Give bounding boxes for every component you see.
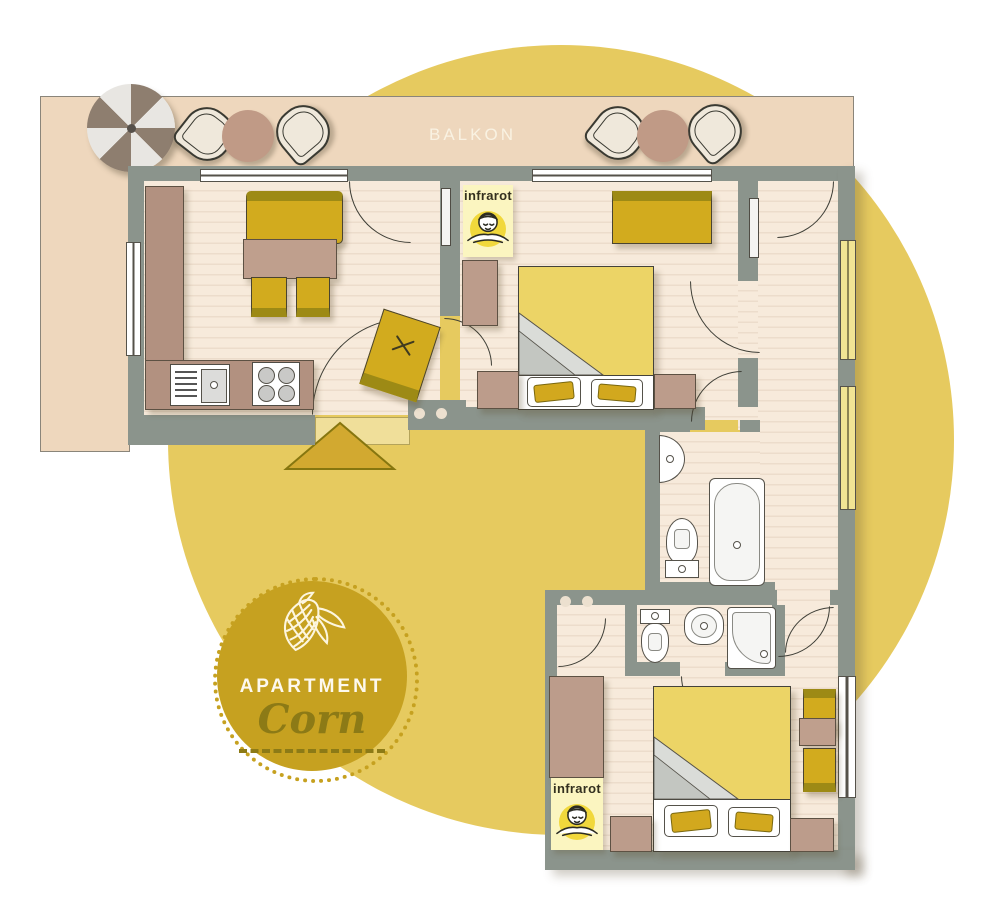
wall-living-bottom — [128, 415, 315, 445]
dining-table — [243, 239, 337, 279]
radiator — [749, 198, 759, 258]
nightstand — [477, 371, 519, 409]
infrared-label: infrarot — [463, 188, 513, 203]
infrared-label: infrarot — [551, 781, 603, 796]
pillow — [728, 807, 780, 837]
window-bedroom1 — [532, 169, 712, 182]
window-living — [200, 169, 348, 182]
cushion — [670, 809, 712, 833]
double-bed — [518, 266, 654, 410]
cushion — [533, 381, 575, 403]
coat-hook-dot — [414, 408, 425, 419]
coat-hook-dot — [582, 596, 593, 607]
nightstand — [790, 818, 834, 852]
balcony-table — [637, 110, 689, 162]
badge-name: Corn — [217, 696, 407, 743]
toilet-tank — [640, 609, 670, 624]
wardrobe — [549, 676, 604, 778]
kitchen-sink-unit — [170, 364, 230, 406]
corridor-floor — [758, 181, 838, 605]
window-kitchen — [126, 242, 141, 356]
nightstand — [610, 816, 652, 852]
desk-chair — [803, 748, 836, 792]
kitchen-cabinet-run — [145, 186, 184, 364]
sideboard — [612, 191, 712, 244]
infrared-panel: infrarot — [551, 778, 603, 850]
toilet-tank — [665, 560, 699, 578]
parasol-icon — [87, 84, 175, 172]
sink-drainer — [175, 371, 197, 399]
wardrobe — [462, 260, 498, 326]
wall-hall-top — [545, 590, 777, 605]
wall-bathroom1-top — [645, 420, 690, 432]
sauna-person-icon — [464, 206, 512, 250]
burner — [278, 367, 295, 384]
coat-hook-dot — [560, 596, 571, 607]
infrared-panel: infrarot — [463, 185, 513, 257]
coat-hook-dot — [436, 408, 447, 419]
armchair-stitch — [389, 331, 417, 359]
badge-divider — [239, 749, 385, 753]
corn-icon — [269, 591, 357, 669]
cushion — [597, 383, 636, 402]
wall-hall-top — [830, 590, 838, 605]
dining-chair — [251, 277, 287, 317]
apartment-badge: APARTMENT Corn — [217, 581, 407, 771]
wall-bathroom1-top — [740, 420, 760, 432]
burner — [258, 367, 275, 384]
radiator — [441, 188, 451, 246]
wall-bathroom1-left — [645, 420, 660, 595]
pillow — [591, 379, 643, 407]
nightstand — [654, 374, 696, 409]
window-corridor — [840, 240, 856, 360]
balcony-table — [222, 110, 274, 162]
wall-bottom — [545, 850, 855, 870]
balcony-label: BALKON — [400, 125, 545, 145]
toilet — [666, 518, 698, 564]
bathtub — [709, 478, 765, 586]
wall-bathroom2-bottom — [625, 662, 680, 676]
sauna-person-icon — [553, 799, 601, 843]
window-bedroom2 — [838, 676, 856, 798]
floor-plan-canvas: BALKON — [0, 0, 1000, 917]
shower — [727, 607, 776, 669]
sofa — [246, 191, 343, 244]
window-corridor — [840, 386, 856, 510]
badge-eyebrow: APARTMENT — [217, 676, 407, 698]
cushion — [734, 811, 773, 832]
toilet — [641, 623, 669, 663]
desk-table — [799, 718, 836, 746]
washbasin — [684, 607, 724, 645]
burner — [258, 385, 275, 402]
pillow — [527, 377, 581, 407]
stove-icon — [252, 362, 300, 406]
pillow — [664, 805, 718, 837]
double-bed — [653, 686, 791, 852]
dining-chair — [296, 277, 330, 317]
burner — [278, 385, 295, 402]
